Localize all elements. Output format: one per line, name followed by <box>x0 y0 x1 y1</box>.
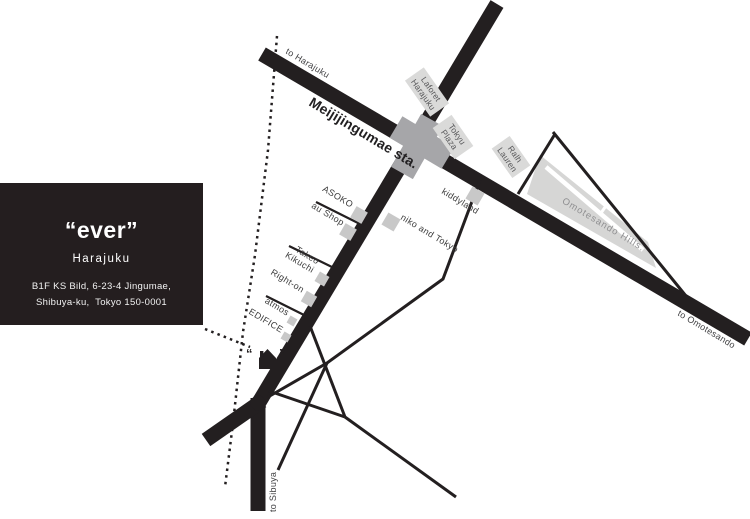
right-on-label: Right-on <box>269 267 306 295</box>
to-shibuya-label: to Sibuya <box>268 472 278 512</box>
dotted-leader-line <box>205 329 250 347</box>
minor-street-c <box>269 391 345 417</box>
minor-street-b <box>278 363 327 470</box>
shop-marker-atmos <box>287 316 298 327</box>
shop-marker-niko <box>381 212 400 231</box>
marker-open-quote: “ <box>246 346 253 361</box>
road-junction <box>251 396 266 411</box>
shop-area: Harajuku <box>0 253 203 265</box>
shop-address-line1: B1F KS Bild, 6-23-4 Jingumae, <box>0 281 203 292</box>
niko-and-tokyo-label: niko and Tokyo <box>399 212 460 254</box>
omotesando-hills-label: Omotesando Hills. <box>560 196 647 254</box>
info-card: “ever” Harajuku B1F KS Bild, 6-23-4 Jing… <box>0 183 203 325</box>
marker-close-quote: ” <box>279 346 286 361</box>
ralph-lauren-label: Ralh Lauren <box>492 136 531 178</box>
house-chimney-icon <box>260 351 263 357</box>
access-map: Laforet Harajuku Tokyu Plaza Ralh Lauren… <box>0 0 750 519</box>
shop-name: “ever” <box>0 217 203 244</box>
minor-street-d <box>345 417 456 497</box>
shop-address-line2: Shibuya-ku, Tokyo 150-0001 <box>0 297 203 308</box>
